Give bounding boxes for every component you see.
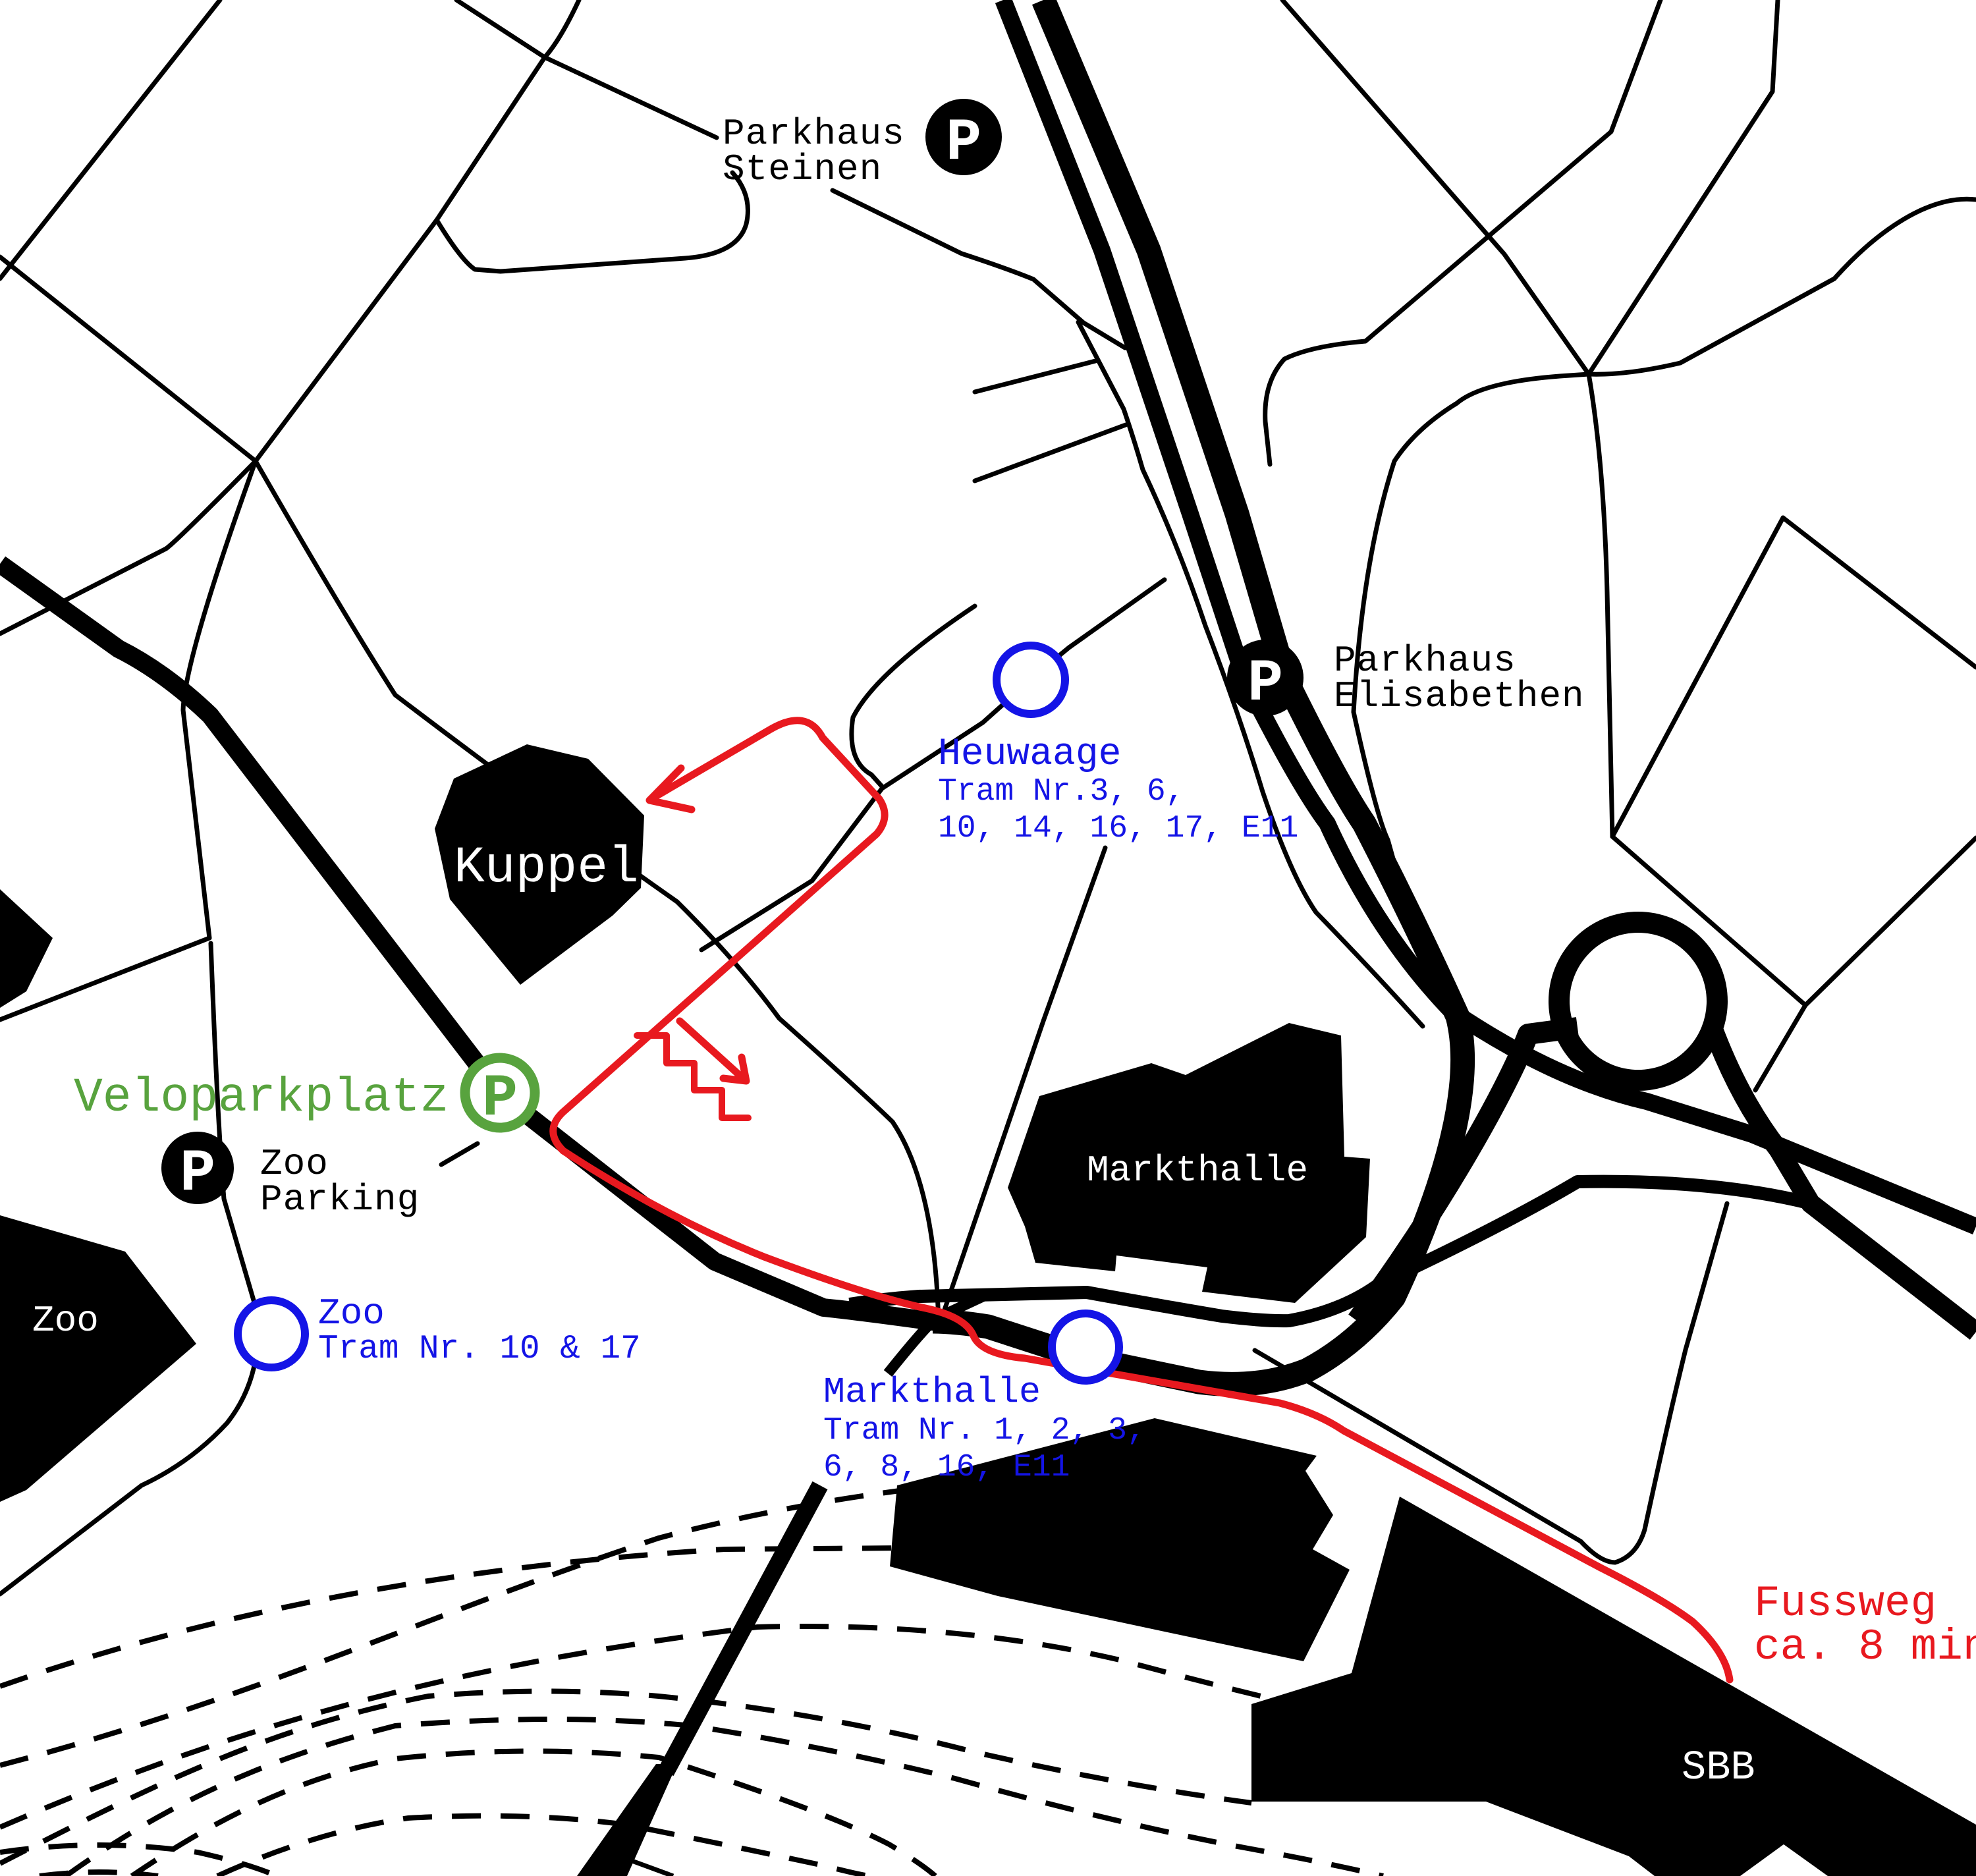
svg-text:Elisabethen: Elisabethen	[1334, 675, 1585, 717]
svg-text:P: P	[180, 1141, 215, 1208]
svg-text:SBB: SBB	[1682, 1744, 1755, 1791]
svg-text:Markthalle: Markthalle	[823, 1371, 1041, 1413]
svg-text:P: P	[1248, 651, 1283, 718]
svg-text:P: P	[946, 110, 981, 177]
svg-text:ca. 8 min.: ca. 8 min.	[1754, 1622, 1976, 1672]
svg-text:Fussweg: Fussweg	[1754, 1579, 1936, 1628]
svg-text:Veloparkplatz: Veloparkplatz	[74, 1070, 449, 1125]
svg-text:Heuwaage: Heuwaage	[938, 733, 1121, 776]
svg-text:P: P	[482, 1066, 518, 1133]
svg-text:Tram Nr. 10 & 17: Tram Nr. 10 & 17	[318, 1331, 641, 1368]
svg-text:10, 14, 16, 17, E11: 10, 14, 16, 17, E11	[938, 811, 1298, 846]
svg-text:Markthalle: Markthalle	[1087, 1149, 1308, 1192]
svg-text:Steinen: Steinen	[723, 148, 882, 190]
svg-text:Kuppel: Kuppel	[454, 839, 639, 897]
svg-text:Parking: Parking	[260, 1178, 420, 1221]
svg-text:Zoo: Zoo	[32, 1300, 99, 1342]
svg-text:Tram Nr.3, 6,: Tram Nr.3, 6,	[938, 774, 1184, 810]
svg-text:Zoo: Zoo	[318, 1292, 385, 1335]
svg-text:Tram Nr. 1, 2, 3,: Tram Nr. 1, 2, 3,	[823, 1413, 1146, 1448]
svg-text:6, 8, 16, E11: 6, 8, 16, E11	[823, 1450, 1070, 1485]
